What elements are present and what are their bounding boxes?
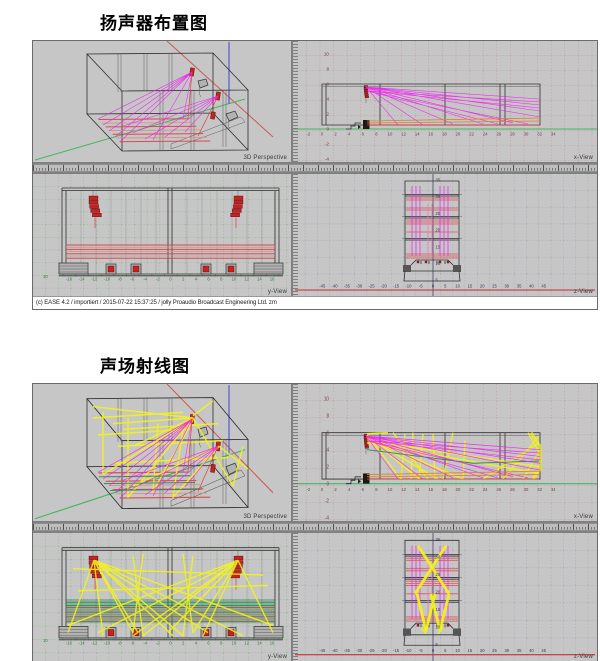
svg-text:-35: -35 [344, 284, 351, 289]
svg-text:16: 16 [270, 641, 275, 646]
svg-text:-20: -20 [381, 284, 388, 289]
room-wireframe-3d [35, 384, 273, 519]
svg-text:35: 35 [436, 178, 441, 183]
svg-text:22: 22 [469, 132, 474, 137]
svg-text:28: 28 [510, 132, 515, 137]
svg-text:-10: -10 [104, 641, 111, 646]
pane-y-view[interactable]: 10 -16-14-12-10-8-6-4-20246810121416 y-V… [33, 174, 291, 296]
svg-text:10: 10 [436, 624, 441, 629]
svg-text:-12: -12 [91, 641, 98, 646]
svg-text:12: 12 [244, 641, 249, 646]
svg-text:16: 16 [428, 132, 433, 137]
svg-text:25: 25 [492, 284, 497, 289]
svg-text:35: 35 [517, 648, 522, 653]
svg-text:30: 30 [504, 648, 509, 653]
svg-text:45: 45 [541, 648, 546, 653]
svg-text:32: 32 [537, 487, 542, 492]
svg-text:8: 8 [326, 413, 329, 419]
svg-text:-10: -10 [405, 284, 412, 289]
figure2-ease-window: 3D Perspective 1086420-2-4 -202468101214… [32, 383, 598, 661]
svg-text:10: 10 [324, 396, 329, 402]
svg-text:-4: -4 [143, 641, 147, 646]
svg-text:-14: -14 [79, 277, 86, 282]
pane-label-z-view: z-View [574, 654, 593, 660]
svg-text:12: 12 [401, 132, 406, 137]
svg-text:-8: -8 [118, 641, 122, 646]
svg-text:-2: -2 [307, 132, 311, 137]
svg-text:10: 10 [232, 277, 237, 282]
svg-text:16: 16 [270, 277, 275, 282]
svg-text:30: 30 [436, 194, 441, 199]
svg-text:8: 8 [326, 67, 329, 72]
svg-text:10: 10 [455, 284, 460, 289]
svg-text:0: 0 [326, 481, 329, 487]
horizontal-ruler[interactable] [33, 164, 597, 172]
svg-text:10: 10 [388, 487, 393, 492]
svg-text:-4: -4 [325, 157, 330, 162]
svg-text:0: 0 [326, 127, 329, 132]
y-view-x-axis-labels: -16-14-12-10-8-6-4-20246810121416 [66, 277, 275, 282]
svg-text:34: 34 [551, 487, 556, 492]
svg-text:10: 10 [455, 648, 460, 653]
svg-text:15: 15 [436, 607, 441, 612]
svg-text:-8: -8 [118, 277, 122, 282]
room-section-x [293, 41, 597, 162]
svg-text:-30: -30 [356, 648, 363, 653]
svg-text:-12: -12 [91, 277, 98, 282]
svg-text:-45: -45 [319, 284, 326, 289]
3d-perspective-canvas [33, 41, 291, 162]
pane-z-view[interactable]: -45-40-35-30-25-20-15-10-505101520253035… [293, 174, 597, 296]
svg-text:10: 10 [436, 261, 441, 266]
svg-text:15: 15 [436, 244, 441, 249]
pane-label-x-view: x-View [574, 155, 593, 161]
svg-text:34: 34 [551, 132, 556, 137]
svg-text:-20: -20 [381, 648, 388, 653]
svg-text:14: 14 [415, 487, 420, 492]
svg-text:30: 30 [436, 554, 441, 559]
pane-label-z-view: z-View [574, 289, 593, 295]
room-plan-z [293, 533, 597, 661]
svg-text:20: 20 [436, 589, 441, 594]
y-view-canvas: 10 -16-14-12-10-8-6-4-20246810121416 [33, 174, 291, 296]
svg-text:35: 35 [436, 537, 441, 542]
svg-text:6: 6 [326, 82, 329, 87]
svg-text:-2: -2 [325, 142, 330, 147]
x-view-canvas: 1086420-2-4 -202468101214161820222426283… [293, 384, 597, 521]
figure1-ease-window: 3D Perspective 1086420-2-4 -202468101214… [32, 40, 598, 310]
svg-text:-35: -35 [344, 648, 351, 653]
svg-text:4: 4 [326, 97, 329, 102]
z-view-canvas: -45-40-35-30-25-20-15-10-505101520253035… [293, 533, 597, 661]
pane-z-view[interactable]: -45-40-35-30-25-20-15-10-505101520253035… [293, 533, 597, 661]
y-view-x-axis-labels: -16-14-12-10-8-6-4-20246810121416 [66, 641, 275, 646]
svg-text:10: 10 [388, 132, 393, 137]
svg-text:-10: -10 [104, 277, 111, 282]
svg-text:-40: -40 [332, 648, 339, 653]
pane-x-view[interactable]: 1086420-2-4 -202468101214161820222426283… [293, 384, 597, 521]
svg-text:-2: -2 [156, 277, 160, 282]
svg-text:22: 22 [469, 487, 474, 492]
svg-text:-6: -6 [131, 277, 135, 282]
svg-text:-25: -25 [368, 648, 375, 653]
svg-text:16: 16 [428, 487, 433, 492]
svg-text:32: 32 [537, 132, 542, 137]
y-view-origin-label: 10 [43, 274, 48, 279]
svg-text:10: 10 [324, 52, 330, 57]
pane-x-view[interactable]: 1086420-2-4 -202468101214161820222426283… [293, 41, 597, 162]
svg-text:40: 40 [529, 284, 534, 289]
pane-label-y-view: y-View [268, 654, 287, 660]
svg-text:10: 10 [232, 641, 237, 646]
svg-text:-25: -25 [368, 284, 375, 289]
horizontal-ruler[interactable] [33, 523, 597, 531]
svg-text:-4: -4 [143, 277, 147, 282]
svg-text:-16: -16 [66, 277, 73, 282]
svg-text:2: 2 [326, 112, 329, 117]
svg-text:2: 2 [326, 464, 329, 470]
svg-text:-40: -40 [332, 284, 339, 289]
z-view-canvas: -45-40-35-30-25-20-15-10-505101520253035… [293, 174, 597, 296]
sound-rays-3d [93, 401, 248, 497]
svg-text:30: 30 [504, 284, 509, 289]
pane-3d-perspective[interactable]: 3D Perspective [33, 41, 291, 162]
svg-text:-2: -2 [307, 487, 311, 492]
svg-text:-15: -15 [393, 284, 400, 289]
document-page: 扬声器布置图 3D Perspective 1086420-2-4 -20246… [0, 0, 600, 661]
svg-text:15: 15 [468, 284, 473, 289]
svg-text:14: 14 [257, 641, 262, 646]
svg-text:-5: -5 [419, 284, 423, 289]
svg-text:-15: -15 [393, 648, 400, 653]
y-view-origin-label: 10 [43, 638, 48, 643]
svg-text:18: 18 [442, 132, 447, 137]
svg-text:26: 26 [496, 132, 501, 137]
svg-text:-30: -30 [356, 284, 363, 289]
svg-text:40: 40 [529, 648, 534, 653]
svg-text:28: 28 [510, 487, 515, 492]
svg-text:20: 20 [456, 132, 461, 137]
svg-text:12: 12 [401, 487, 406, 492]
svg-text:24: 24 [483, 132, 488, 137]
pane-y-view[interactable]: 10 -16-14-12-10-8-6-4-20246810121416 y-V… [33, 533, 291, 661]
svg-text:-16: -16 [66, 641, 73, 646]
svg-text:-10: -10 [405, 648, 412, 653]
svg-text:26: 26 [496, 487, 501, 492]
svg-text:6: 6 [326, 430, 329, 436]
svg-text:30: 30 [524, 132, 529, 137]
pane-3d-perspective[interactable]: 3D Perspective [33, 384, 291, 521]
svg-text:-4: -4 [325, 515, 329, 521]
svg-text:20: 20 [456, 487, 461, 492]
pane-label-3d: 3D Perspective [244, 155, 288, 161]
svg-text:45: 45 [541, 284, 546, 289]
svg-text:15: 15 [468, 648, 473, 653]
svg-text:25: 25 [436, 572, 441, 577]
y-view-canvas: 10 -16-14-12-10-8-6-4-20246810121416 [33, 533, 291, 661]
svg-text:-2: -2 [325, 498, 329, 504]
x-view-canvas: 1086420-2-4 -202468101214161820222426283… [293, 41, 597, 162]
figure1-title: 扬声器布置图 [0, 0, 600, 40]
svg-text:30: 30 [524, 487, 529, 492]
svg-text:20: 20 [480, 284, 485, 289]
pane-label-x-view: x-View [574, 514, 593, 520]
pane-label-y-view: y-View [268, 289, 287, 295]
svg-text:-45: -45 [319, 648, 326, 653]
svg-text:-2: -2 [156, 641, 160, 646]
svg-text:14: 14 [415, 132, 420, 137]
svg-text:35: 35 [517, 284, 522, 289]
svg-text:12: 12 [244, 277, 249, 282]
room-plan-z [293, 174, 597, 296]
svg-text:-14: -14 [79, 641, 86, 646]
svg-text:-6: -6 [131, 641, 135, 646]
svg-text:25: 25 [436, 211, 441, 216]
svg-text:18: 18 [442, 487, 447, 492]
svg-text:14: 14 [257, 277, 262, 282]
svg-text:4: 4 [326, 447, 329, 453]
svg-text:25: 25 [492, 648, 497, 653]
status-bar: (c) EASE 4.2 / importiert / 2015-07-22 1… [33, 296, 597, 309]
figure2-title: 声场射线图 [0, 310, 600, 383]
svg-text:20: 20 [436, 228, 441, 233]
svg-text:-5: -5 [419, 648, 423, 653]
svg-text:20: 20 [480, 648, 485, 653]
room-wireframe-3d [35, 41, 273, 160]
svg-text:24: 24 [483, 487, 488, 492]
pane-label-3d: 3D Perspective [244, 514, 288, 520]
3d-perspective-canvas [33, 384, 291, 521]
